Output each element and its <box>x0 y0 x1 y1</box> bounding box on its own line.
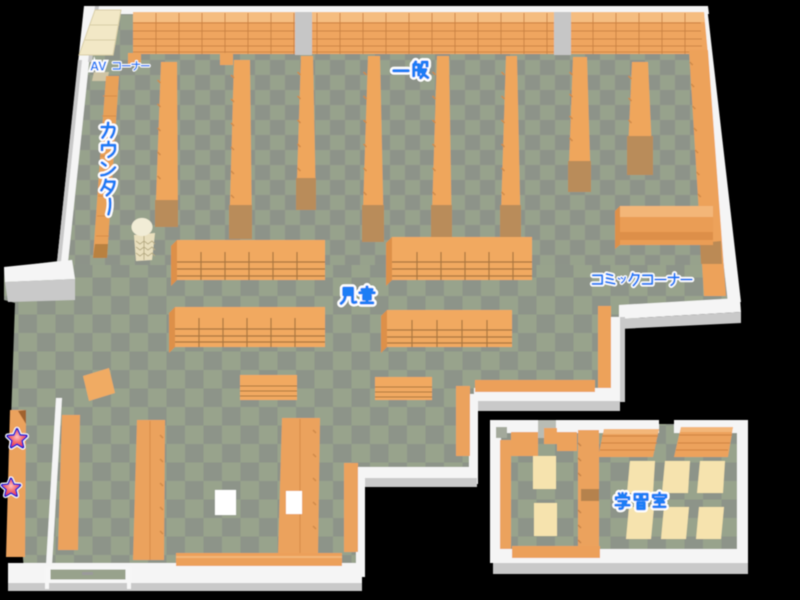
svg-text:AV: AV <box>90 60 107 74</box>
